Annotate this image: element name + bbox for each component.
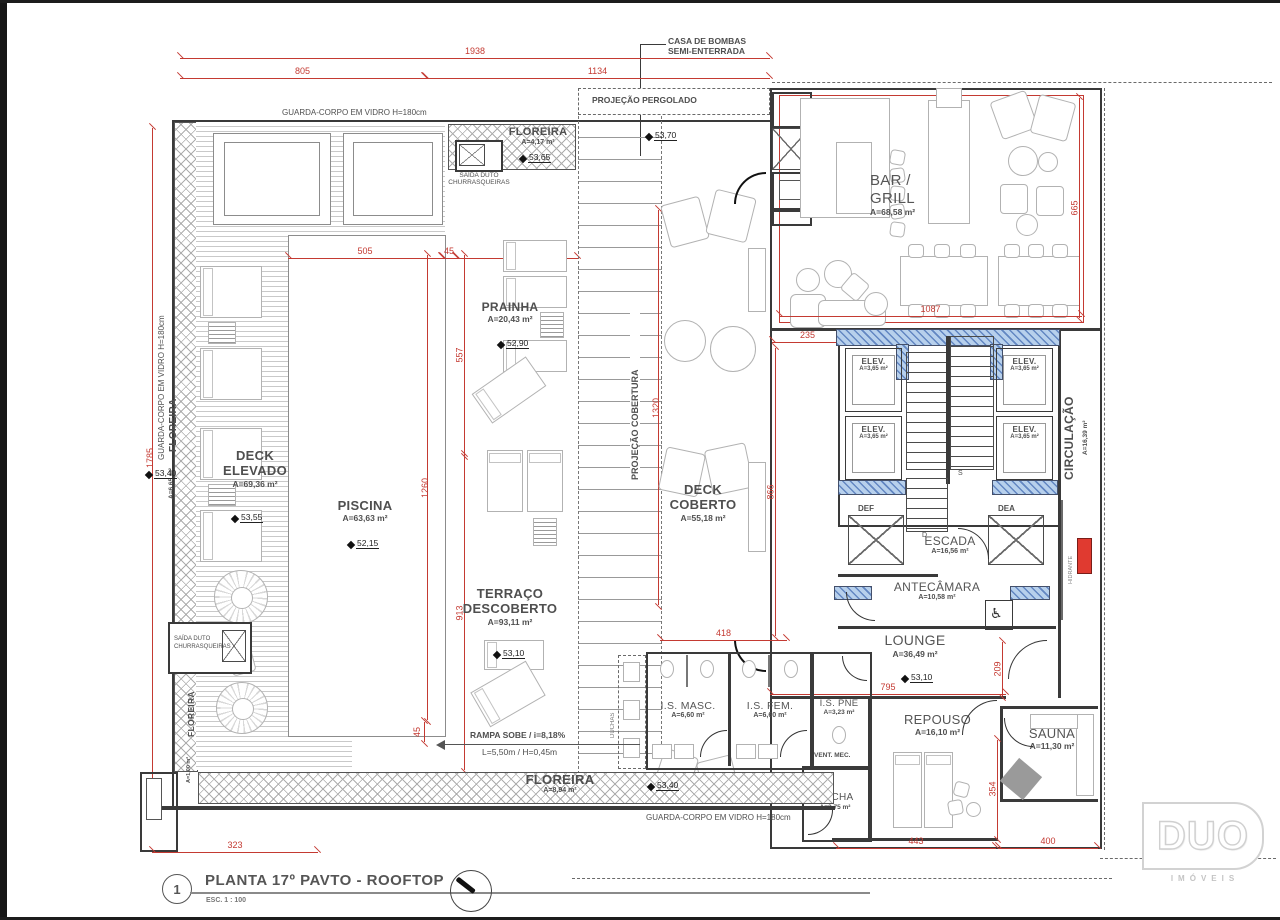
guard-rail-bottom-label: GUARDA-CORPO EM VIDRO H=180cm [646,813,791,822]
repouso-left-wall [868,698,871,840]
chair [908,244,924,258]
plant-spiral [214,570,268,624]
sauna-bench [1030,714,1078,729]
sauna-top-wall [1000,706,1098,709]
stair-stringer [946,336,950,484]
casa-de-bombas-label: CASA DE BOMBAS SEMI-ENTERRADA [668,36,746,56]
pergolado-top-label: PROJEÇÃO PERGOLADO [592,95,697,105]
dim-1087: 1087 [779,316,1082,317]
dim-1938: 1938 [180,58,770,59]
dashed-bottom-boundary [572,878,1112,879]
sauna-bottom-wall [1000,799,1098,802]
level-pergolado: 53,70 [646,130,677,141]
pouf [864,292,888,316]
dim-45b: 45 [424,722,425,742]
duct-label-top: SAÍDA DUTOCHURRASQUEIRAS [444,172,514,186]
prainha-lounger [503,240,567,272]
rampa-arrow-head [436,740,445,750]
room-is-fem: I.S. FEM. A=6,60 m² [732,700,808,721]
rampa-label-1: RAMPA SOBE / i=8,18% [470,730,565,740]
core-wall-bottom-l [838,480,906,495]
accessible-box: ♿ [985,600,1013,630]
hydrant-box [1077,538,1092,574]
chair [960,244,976,258]
lounger [200,266,262,318]
toilet [660,660,674,678]
plan-title: PLANTA 17º PAVTO - ROOFTOP [205,872,444,889]
rampa-arrow-line [440,744,640,745]
plan-scale: ESC. 1 : 100 [206,897,246,904]
shaft-inner [779,180,801,200]
room-bar-grill: BAR / GRILL A=68,58 m² [870,172,950,217]
kitchen-inner [836,142,872,214]
dim-1785: 1785 [152,128,153,788]
sink [674,744,694,759]
sauna-bench [1076,714,1094,796]
room-prainha: PRAINHA A=20,43 m² [455,300,565,324]
pilaster-inner [146,778,162,820]
stall-wall [686,655,688,687]
vent-mec-label: VENT. MEC. [814,752,850,759]
sink [736,744,756,759]
casa-de-bombas-line1: CASA DE BOMBAS [668,36,746,46]
dim-354: 354 [997,740,998,838]
wheelchair-icon: ♿ [990,605,1003,622]
dim-665: 665 [1079,98,1080,318]
room-circulacao: CIRCULAÇÃO A=16,39 m² [1062,368,1096,508]
core-wall-bottom-r [992,480,1058,495]
elevator-car: ELEV.A=3,65 m² [996,348,1053,412]
round-table [1016,214,1038,236]
level-deck-elevado: 53,55 [232,512,263,523]
hydrant-label: HIDRANTE [1068,522,1074,584]
round-table [1008,146,1038,176]
shower-cell [623,662,640,682]
duct-x-top [459,144,485,166]
guard-rail-left-label: GUARDA-CORPO EM VIDRO H=180cm [157,250,166,460]
chair [934,244,950,258]
chair [1028,244,1044,258]
room-is-pne: I.S. PNE A=3,23 m² [810,698,868,717]
stair-flight-lower [906,478,948,532]
showers-label: DUCHAS [610,688,616,738]
level-piscina: 52,15 [348,538,379,549]
ante-wall-r [1010,586,1050,600]
title-number-circle: 1 [162,874,192,904]
level-floreira-left: 53,40 [146,468,177,479]
level-floreira-top: 53,65 [520,152,551,163]
bar-stool [889,149,906,166]
terraco-lounger [527,450,563,512]
dim-400: 400 [998,848,1098,849]
guard-rail-bottom [150,806,835,810]
duo-logo-text: DUO [1157,814,1249,859]
side-table [208,322,236,344]
dim-1320: 1320 [658,210,659,605]
duct-label-bottom: SAÍDA DUTO CHURRASQUEIRAS [174,636,222,652]
bar-stool [889,221,906,238]
stair-flight-left [906,352,950,470]
floorplan-canvas: CASA DE BOMBAS SEMI-ENTERRADA 1938 805 1… [0,0,1280,920]
dim-557: 557 [464,255,465,455]
side-table [533,518,557,546]
dim-505: 505 [288,258,442,259]
elevator-car: ELEV.A=3,65 m² [996,416,1053,480]
terraco-lounger [487,450,523,512]
north-arrow-needle [455,877,475,894]
dim-418: 418 [660,640,787,641]
spa-1-inner [224,142,320,216]
lounger [200,348,262,400]
dim-1134: 1134 [425,78,770,79]
chair [1052,244,1068,258]
repouso-lounger [893,752,922,828]
toilet [700,660,714,678]
ante-bottom-wall [838,626,1056,629]
dining-table [900,256,988,306]
dim-805: 805 [180,78,425,79]
room-is-masc: I.S. MASC. A=6,60 m² [648,700,728,721]
dining-table [998,256,1080,306]
elevator-car: ELEV.A=3,65 m² [845,416,902,480]
dashed-right-boundary [1104,88,1105,850]
spa-2-inner [353,142,433,216]
ante-top-wall [838,574,938,577]
elevator-car: ELEV.A=3,65 m² [845,348,902,412]
frame-top [0,0,1280,3]
pouf [796,268,820,292]
north-arrow [450,870,492,912]
rampa-label-2: L=5,50m / H=0,45m [482,747,557,757]
sink [758,744,778,759]
pouf [1038,152,1058,172]
grill-top [936,88,962,108]
duo-logo: DUO [1142,802,1264,870]
room-floreira-top: FLOREIRA A=4,17 m² [498,126,578,147]
dim-443: 443 [836,848,996,849]
level-terraco: 53,10 [494,648,525,659]
guard-rail-top-label: GUARDA-CORPO EM VIDRO H=180cm [282,108,427,117]
duo-logo-subtitle: IMÓVEIS [1150,874,1260,883]
armchair [1000,184,1028,214]
room-piscina: PISCINA A=63,63 m² [300,498,430,523]
stair-flight-right [950,336,994,470]
dim-235: 235 [772,342,843,343]
toilet [832,726,846,744]
title-underline [190,892,870,894]
round-table [710,326,756,372]
chair [1004,244,1020,258]
stair-up-label: S [958,470,963,477]
sink [652,744,672,759]
bench [748,248,766,312]
armchair [1036,186,1064,216]
room-deck-coberto: DECK COBERTO A=55,18 m² [648,482,758,523]
room-lounge: LOUNGE A=36,49 m² [855,632,975,659]
cover-projection-label: PROJEÇÃO COBERTURA [630,310,640,480]
shaft-def-label: DEF [858,504,874,513]
plant-spiral [216,682,268,734]
wc-divider [728,652,731,766]
dashed-top-boundary [772,82,1272,83]
shower-cell [623,700,640,720]
chair [947,799,964,816]
casa-de-bombas-leader-h [640,44,666,45]
room-terraco: TERRAÇO DESCOBERTO A=93,11 m² [430,586,590,627]
corridor-notch [1061,500,1063,620]
dim-323: 323 [152,852,318,853]
title-number: 1 [173,882,180,897]
shaft-dea-label: DEA [998,504,1015,513]
toilet [742,660,756,678]
toilet [784,660,798,678]
frame-left [0,0,7,920]
shower-cell [623,738,640,758]
level-lounge: 53,10 [902,672,933,683]
repouso-lounger [924,752,953,828]
dim-45a: 45 [442,258,456,259]
shaft-def [848,515,904,565]
pouf [966,802,981,817]
stall-wall [768,655,770,687]
duct-x-bottom [222,630,246,662]
dim-866: 866 [775,348,776,636]
dim-1260: 1260 [427,255,428,720]
sauna-left-wall [1000,706,1003,802]
level-floreira-bottom: 53,40 [648,780,679,791]
room-floreira-left: FLOREIRA A=6,65 m² [168,390,198,508]
casa-de-bombas-line2: SEMI-ENTERRADA [668,46,745,56]
round-table [664,320,706,362]
room-floreira-bottom: FLOREIRA A=8,94 m² [480,772,640,796]
level-prainha: 52,90 [498,338,529,349]
